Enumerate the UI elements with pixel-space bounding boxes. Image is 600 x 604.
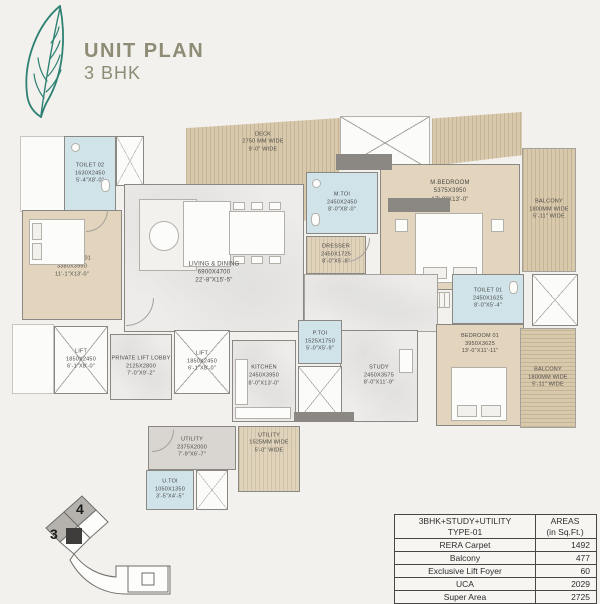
room-name: PRIVATE LIFT LOBBY [111, 355, 171, 363]
wall [336, 154, 392, 170]
pillow [457, 405, 477, 417]
room-dim-mm: 2750 MM WIDE [186, 139, 340, 147]
room-label: UTILITY 1525MM WIDE 5'-0" WIDE [239, 432, 299, 455]
wall [294, 412, 354, 422]
room-label: LIFT 1850X2450 6'-1"X8'-0" [175, 350, 229, 373]
pillow [481, 405, 501, 417]
room-name: LIFT [175, 350, 229, 358]
room-dim-mm: 6900X4700 [125, 268, 303, 276]
room-dim-ft: 5'-0" WIDE [239, 447, 299, 455]
table-header-row: 3BHK+STUDY+UTILITY TYPE-01 AREAS (in Sq.… [395, 515, 597, 539]
room-name: TOILET 02 [65, 162, 115, 170]
room-study: STUDY 2450X3575 8'-0"X11'-9" [340, 330, 418, 422]
areas-table: 3BHK+STUDY+UTILITY TYPE-01 AREAS (in Sq.… [394, 514, 597, 604]
room-dim-mm: 1525MM WIDE [239, 440, 299, 448]
room-dim-mm: 2125X2800 [111, 363, 171, 371]
room-dim-ft: 5'-0"X5'-9" [299, 346, 341, 354]
room-p-toi: P.TOI 1525X1750 5'-0"X5'-9" [298, 320, 342, 364]
room-dim-ft: 22'-8"X15'-5" [125, 277, 303, 285]
key-plan-core [66, 528, 82, 544]
room-dim-ft: 8'-0"X11'-9" [341, 380, 417, 388]
room-dim-mm: 2450X3575 [341, 372, 417, 380]
room-dim-ft: 11'-1"X13'-0" [23, 271, 121, 279]
wall [388, 198, 450, 212]
room-dim-ft: 6'-1"X8'-0" [55, 364, 107, 372]
basin-icon [312, 179, 321, 188]
open-area [12, 324, 54, 394]
deck-right [432, 112, 522, 166]
table-header-areas: AREAS (in Sq.Ft.) [536, 515, 597, 539]
room-label: PRIVATE LIFT LOBBY 2125X2800 7'-0"X9'-2" [111, 355, 171, 378]
table-header-type: 3BHK+STUDY+UTILITY TYPE-01 [395, 515, 536, 539]
room-dim-mm: 2450X2450 [307, 199, 377, 207]
room-dim-ft: 13'-0"X11'-11" [437, 348, 523, 356]
shaft [532, 274, 578, 326]
room-private-lift-lobby: PRIVATE LIFT LOBBY 2125X2800 7'-0"X9'-2" [110, 334, 172, 400]
balcony-bottom-right: BALCONY 1800MM WIDE 5'-11" WIDE [520, 328, 576, 428]
open-terrace [20, 136, 66, 212]
room-dim-ft: 5'-11" WIDE [521, 382, 575, 390]
table-header-areas-line1: AREAS [540, 516, 590, 527]
room-name: BALCONY [521, 366, 575, 374]
room-m-bedroom: M.BEDROOM 5375X3950 17'-8"X13'-0" [380, 164, 520, 290]
room-dim-ft: 5'-11" WIDE [523, 214, 575, 222]
balcony-top-right: BALCONY 1800MM WIDE 5'-11" WIDE [522, 148, 576, 272]
room-label: LIVING & DINING 6900X4700 22'-8"X15'-5" [125, 260, 303, 285]
room-dim-mm: 1850X2450 [175, 358, 229, 366]
room-bedroom-01-left: BEDROOM 01 3380X3950 11'-1"X13'-0" [22, 210, 122, 320]
room-name: M.TOI [307, 191, 377, 199]
room-label: M.TOI 2450X2450 8'-0"X8'-0" [307, 191, 377, 214]
room-name: U.TOI [147, 478, 193, 486]
desk [399, 349, 413, 373]
room-name: BALCONY [523, 198, 575, 206]
room-dim-mm: 1850X2450 [55, 356, 107, 364]
row-label: RERA Carpet [395, 539, 536, 552]
table-row: RERA Carpet 1492 [395, 539, 597, 552]
room-dim-ft: 8'-0"X5'-4" [453, 303, 523, 311]
room-lift-center: LIFT 1850X2450 6'-1"X8'-0" [174, 330, 230, 394]
row-label: Super Area [395, 591, 536, 604]
room-dim-mm: 2450X3950 [233, 372, 295, 380]
pillow [32, 223, 42, 240]
room-name: BEDROOM 01 [437, 333, 523, 341]
room-name: LIVING & DINING [125, 260, 303, 268]
kitchen-counter [235, 407, 291, 419]
room-dim-ft: 7'-9"X6'-7" [149, 452, 235, 460]
room-label: LIFT 1850X2450 6'-1"X8'-0" [55, 348, 107, 371]
table-header-areas-line2: (in Sq.Ft.) [540, 527, 590, 538]
chair [269, 202, 281, 210]
room-name: LIFT [55, 348, 107, 356]
room-dim-ft: 7'-0"X9'-2" [111, 371, 171, 379]
row-value: 2725 [536, 591, 597, 604]
room-bedroom-01-right: BEDROOM 01 3950X3625 13'-0"X11'-11" [436, 324, 524, 426]
coffee-table [149, 221, 179, 251]
row-value: 477 [536, 552, 597, 565]
key-plan-number-4: 4 [76, 501, 84, 517]
room-dim-mm: 3950X3625 [437, 341, 523, 349]
wc-icon [509, 281, 518, 294]
shaft [116, 136, 144, 186]
table-header-type-line2: TYPE-01 [399, 527, 531, 538]
room-dim-mm: 5375X3950 [381, 187, 519, 195]
room-dim-mm: 1525X1750 [299, 338, 341, 346]
room-utility-passage: UTILITY 1525MM WIDE 5'-0" WIDE [238, 426, 300, 492]
table-row: UCA 2029 [395, 578, 597, 591]
room-dim-ft: 9'-0" WIDE [186, 146, 340, 154]
unit-plan-page: UNIT PLAN 3 BHK TOILET 02 1630X2450 5'-4… [0, 0, 600, 600]
room-name: UTILITY [239, 432, 299, 440]
table-header-type-line1: 3BHK+STUDY+UTILITY [399, 516, 531, 527]
sofa [183, 201, 231, 267]
row-label: Exclusive Lift Foyer [395, 565, 536, 578]
table-row: Super Area 2725 [395, 591, 597, 604]
row-value: 2029 [536, 578, 597, 591]
chair [251, 202, 263, 210]
page-title: UNIT PLAN [84, 40, 204, 63]
room-dim-mm: 1800MM WIDE [523, 206, 575, 214]
page-subtitle: 3 BHK [84, 63, 141, 84]
room-lift-left: LIFT 1850X2450 6'-1"X8'-0" [54, 326, 108, 394]
table-row: Exclusive Lift Foyer 60 [395, 565, 597, 578]
room-label: BALCONY 1800MM WIDE 5'-11" WIDE [523, 198, 575, 221]
room-dim-mm: 1800MM WIDE [521, 374, 575, 382]
pillow [32, 243, 42, 260]
dining-table [229, 211, 285, 255]
room-label: P.TOI 1525X1750 5'-0"X5'-9" [299, 330, 341, 353]
room-dim-ft: 8'-0"X13'-0" [233, 380, 295, 388]
door-arc [346, 238, 370, 262]
room-dim-mm: 1630X2450 [65, 170, 115, 178]
room-m-toi: M.TOI 2450X2450 8'-0"X8'-0" [306, 172, 378, 234]
side-table [395, 219, 408, 232]
row-label: Balcony [395, 552, 536, 565]
room-label: BALCONY 1800MM WIDE 5'-11" WIDE [521, 366, 575, 389]
table-row: Balcony 477 [395, 552, 597, 565]
row-value: 60 [536, 565, 597, 578]
row-label: UCA [395, 578, 536, 591]
room-label: BEDROOM 01 3950X3625 13'-0"X11'-11" [437, 333, 523, 356]
wc-icon [311, 213, 320, 226]
shaft [196, 470, 228, 510]
chair [233, 202, 245, 210]
room-dim-ft: 8'-0"X5'-8" [307, 259, 365, 267]
room-dim-mm: 2450X1625 [453, 295, 523, 303]
key-plan: 3 4 [24, 492, 194, 604]
row-value: 1492 [536, 539, 597, 552]
key-plan-number-3: 3 [50, 526, 58, 542]
room-name: DECK [186, 131, 340, 139]
room-dim-ft: 6'-1"X8'-0" [175, 366, 229, 374]
room-name: KITCHEN [233, 365, 295, 373]
room-name: M.BEDROOM [381, 179, 519, 187]
room-toilet-01: TOILET 01 2450X1625 8'-0"X5'-4" [452, 274, 524, 324]
basin-icon [71, 143, 80, 152]
room-name: P.TOI [299, 330, 341, 338]
leaf-logo-icon [18, 2, 80, 120]
room-label: KITCHEN 2450X3950 8'-0"X13'-0" [233, 365, 295, 388]
wc-icon [101, 179, 110, 192]
side-table [491, 219, 504, 232]
room-label: DECK 2750 MM WIDE 9'-0" WIDE [186, 131, 340, 154]
room-kitchen: KITCHEN 2450X3950 8'-0"X13'-0" [232, 340, 296, 422]
room-toilet-02: TOILET 02 1630X2450 5'-4"X8'-0" [64, 136, 116, 212]
